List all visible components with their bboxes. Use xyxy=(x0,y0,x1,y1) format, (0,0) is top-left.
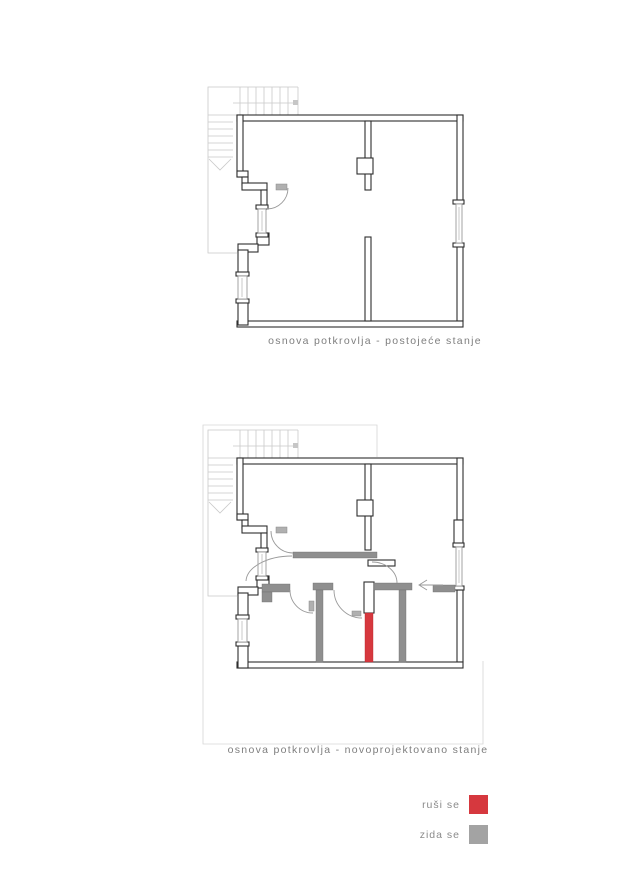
alcove-wall xyxy=(242,526,267,533)
floor-plan-proposed xyxy=(203,425,483,744)
wall-right-upper xyxy=(457,115,463,203)
new-walls xyxy=(262,552,455,662)
legend-item-demolish: ruši se xyxy=(320,795,488,814)
wall-top xyxy=(237,115,463,121)
windows-existing xyxy=(236,200,464,303)
caption-proposed: osnova potkrovlja - novoprojektovano sta… xyxy=(218,744,498,756)
new-wall-partition-2 xyxy=(399,590,406,662)
wall-right-upper xyxy=(457,458,463,520)
sheet: osnova potkrovlja - postojeće stanje osn… xyxy=(0,0,630,891)
interior-wall-stub xyxy=(364,582,374,613)
door-leaf-tick xyxy=(309,601,314,611)
corridor-lintel xyxy=(368,560,395,566)
interior-wall-lower xyxy=(365,237,371,321)
legend-item-build: zida se xyxy=(320,825,488,844)
wall-right-lower xyxy=(457,245,463,321)
door-swing-arc xyxy=(267,188,288,209)
drawing-canvas xyxy=(0,0,630,891)
interior-wall-upper xyxy=(365,121,371,190)
walls-proposed-existing xyxy=(237,458,463,668)
door-leaf xyxy=(276,527,287,533)
staircase-proposed xyxy=(208,430,298,596)
walls-existing xyxy=(237,115,463,327)
legend-swatch-build xyxy=(469,825,488,844)
wall-left-upper xyxy=(237,458,243,520)
wall-left-upper xyxy=(237,115,243,177)
window-right xyxy=(453,200,464,247)
door-leaf-tick xyxy=(352,611,361,616)
window-right xyxy=(453,543,464,590)
new-wall-corridor-left xyxy=(293,552,377,558)
stair-direction-arrow xyxy=(209,159,231,170)
wall-bottom xyxy=(237,321,463,327)
legend-label-build: zida se xyxy=(420,829,460,841)
stair-direction-arrow xyxy=(209,502,231,513)
new-wall-L-vertical xyxy=(262,592,272,602)
ground-floor-outline xyxy=(203,425,483,744)
wall-bottom xyxy=(237,662,463,668)
legend-label-demolish: ruši se xyxy=(422,799,460,811)
window-left-upper xyxy=(256,205,268,237)
wall-right-opening xyxy=(454,520,463,546)
stair-treads-left xyxy=(208,465,233,500)
demolished-wall xyxy=(365,613,373,662)
new-wall-stub-right xyxy=(433,585,455,592)
chimney xyxy=(357,158,373,174)
new-wall-partition-1 xyxy=(316,590,323,662)
door-existing xyxy=(267,184,288,209)
window-left-lower xyxy=(236,272,249,303)
floor-plan-existing xyxy=(208,87,464,327)
staircase-existing xyxy=(208,87,298,253)
door-swing-arc xyxy=(271,531,293,553)
new-wall-L-horizontal xyxy=(262,584,290,592)
wall-right-lower xyxy=(457,590,463,662)
legend-swatch-demolish xyxy=(469,795,488,814)
new-wall-corridor-right xyxy=(374,583,412,590)
alcove-wall xyxy=(242,183,267,190)
wall-top xyxy=(237,458,463,464)
stair-treads-top xyxy=(240,430,288,458)
window-left-upper xyxy=(256,548,268,580)
stair-landing-dot xyxy=(293,443,298,448)
door-leaf xyxy=(276,184,287,190)
new-wall-T-cap xyxy=(313,583,333,590)
caption-existing: osnova potkrovlja - postojeće stanje xyxy=(255,335,495,347)
stair-treads-top xyxy=(240,87,288,115)
stair-treads-left xyxy=(208,122,233,157)
chimney xyxy=(357,500,373,516)
stair-landing-dot xyxy=(293,100,298,105)
window-left-lower xyxy=(236,615,249,646)
